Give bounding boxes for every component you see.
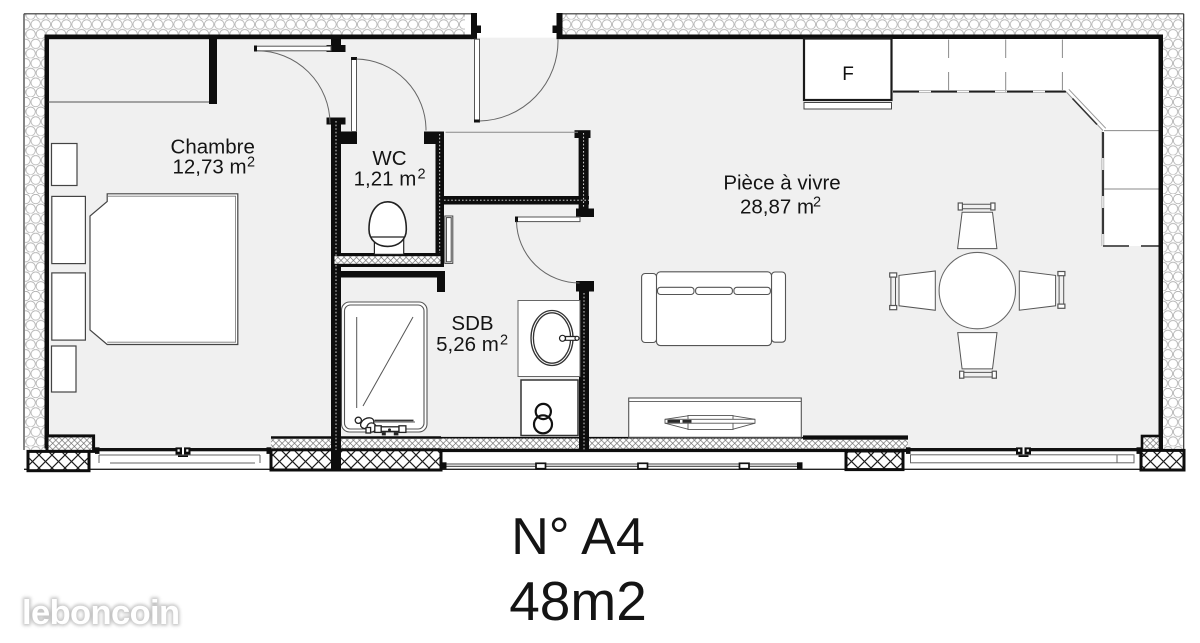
svg-text:2: 2 [247, 155, 255, 171]
svg-text:2: 2 [500, 333, 508, 349]
svg-text:12,73 m: 12,73 m [172, 156, 246, 179]
svg-text:N° A4: N° A4 [511, 508, 645, 566]
svg-text:Pièce à vivre: Pièce à vivre [723, 171, 840, 194]
svg-text:WC: WC [372, 147, 406, 170]
svg-text:28,87 m: 28,87 m [740, 195, 814, 218]
svg-text:2: 2 [418, 167, 426, 183]
svg-text:leboncoin: leboncoin [22, 594, 180, 632]
svg-text:5,26 m: 5,26 m [436, 333, 499, 356]
svg-text:F: F [842, 64, 854, 85]
svg-text:1,21 m: 1,21 m [354, 168, 417, 191]
svg-text:2: 2 [813, 194, 821, 210]
svg-text:48m2: 48m2 [509, 570, 647, 632]
svg-text:SDB: SDB [451, 312, 493, 335]
